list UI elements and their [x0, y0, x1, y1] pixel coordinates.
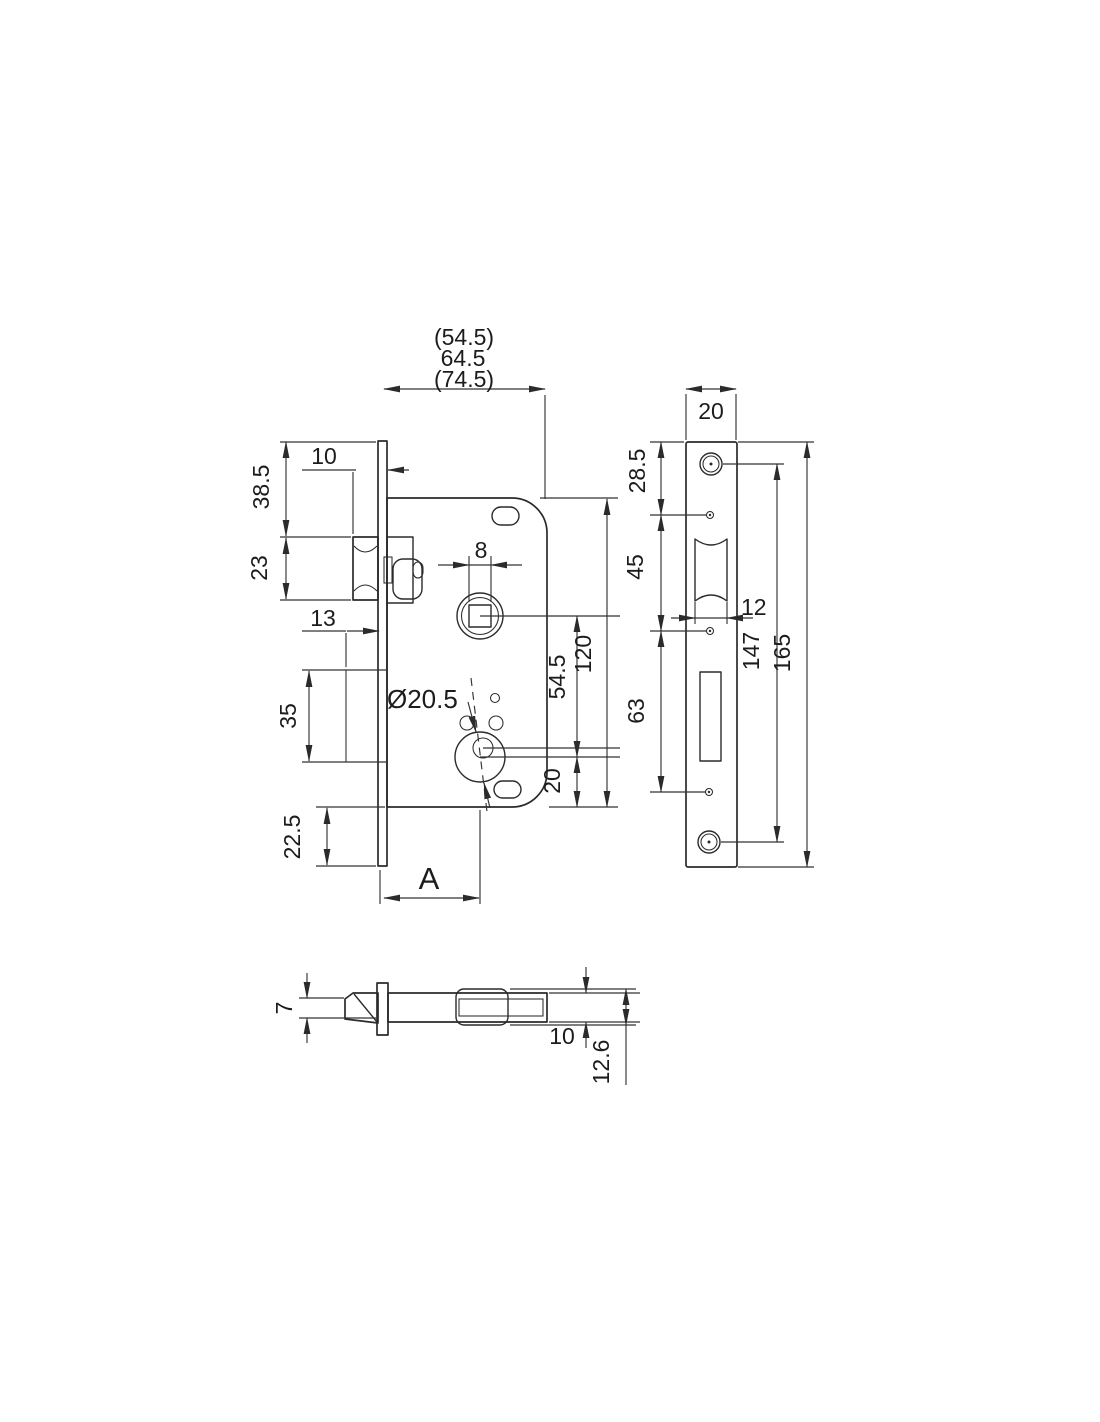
- latch-inner-slot: [459, 999, 543, 1016]
- cylinder-ear-right-circle: [489, 716, 503, 730]
- dim-label-hole2-to-hole3: 63: [623, 698, 649, 724]
- latch-follower-housing: [387, 537, 413, 603]
- latch-side-view: 7 10 12.6: [271, 967, 640, 1085]
- dim-label-latch-protrusion: 10: [311, 443, 337, 469]
- mount-slot-top: [492, 507, 519, 525]
- dim-label-spindle-to-cylinder: 54.5: [544, 655, 570, 700]
- dim-label-case-height: 120: [570, 635, 596, 673]
- dim-label-spindle-square: 8: [475, 537, 488, 563]
- dim-label-plate-top-to-latch: 38.5: [248, 465, 274, 510]
- front-view: (54.5) 64.5 (74.5) 10 38.5 23 13 35 22.5: [246, 324, 620, 904]
- dim-label-screw-spacing: 147: [738, 632, 764, 670]
- faceplate-view: 20 28.5 45 63 12 147 165: [622, 389, 814, 867]
- dim-label-deadbolt-height: 35: [275, 703, 301, 729]
- dim-label-latch-cutout-width: 12: [741, 594, 767, 620]
- pin-hole-1-center: [709, 514, 711, 516]
- deadbolt-cutout-outline: [700, 672, 721, 761]
- dim-label-cylinder-to-case-bottom: 20: [539, 768, 565, 794]
- latch-waist-arc-bottom: [354, 585, 377, 591]
- small-hole-circle: [491, 694, 500, 703]
- mount-slot-bottom: [494, 781, 521, 798]
- latch-cutout-outline: [695, 539, 727, 601]
- dim-label-hole1-to-hole2: 45: [622, 554, 648, 580]
- dim-label-latch-height: 23: [246, 555, 272, 581]
- dim-label-cylinder-diameter: Ø20.5: [387, 684, 458, 714]
- latch-bolt-front-outline: [353, 537, 378, 600]
- faceplate-edge-outline: [378, 441, 387, 866]
- dim-label-case-to-plate-bottom: 22.5: [279, 815, 305, 860]
- technical-drawing: (54.5) 64.5 (74.5) 10 38.5 23 13 35 22.5: [0, 0, 1100, 1422]
- dim-label-deadbolt-offset: 13: [310, 605, 336, 631]
- dim-label-faceplate-height: 165: [769, 634, 795, 672]
- pin-hole-2-center: [709, 630, 711, 632]
- latch-body-outline: [388, 993, 547, 1022]
- pin-hole-3-center: [708, 791, 710, 793]
- dim-label-plate-top-to-hole1: 28.5: [624, 449, 650, 494]
- dim-label-case-depth-large: (74.5): [434, 366, 494, 392]
- lock-case-outline: [387, 498, 547, 807]
- faceplate-outline: [686, 442, 737, 867]
- dim-label-backset: A: [419, 861, 440, 896]
- latch-waist-arc-top: [354, 546, 377, 552]
- drawing-canvas: (54.5) 64.5 (74.5) 10 38.5 23 13 35 22.5: [0, 0, 1100, 1422]
- screw-hole-top-center: [710, 463, 713, 466]
- dim-label-faceplate-width: 20: [698, 398, 724, 424]
- latch-guide-rails: [456, 989, 508, 1025]
- screw-hole-bottom-center: [708, 841, 711, 844]
- latch-follower-tab: [384, 557, 392, 583]
- latch-follower-cam: [393, 559, 422, 599]
- dim-label-latch-head-height: 7: [271, 1002, 297, 1015]
- dim-label-latch-body-height: 10: [549, 1023, 575, 1049]
- dim-label-latch-overall-height: 12.6: [588, 1040, 614, 1085]
